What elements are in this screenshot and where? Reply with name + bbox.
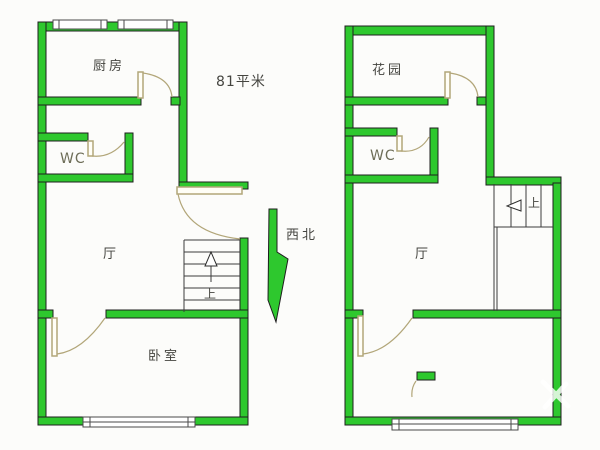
unit-right-hall-door — [358, 316, 412, 356]
unit-right-wc-door — [397, 136, 429, 151]
label-up-left: 上 — [204, 288, 216, 300]
unit-left-kitchen-door — [138, 72, 172, 98]
label-area: 81平米 — [216, 75, 266, 89]
floorplan-drawing — [0, 0, 600, 450]
label-bedroom: 卧室 — [148, 350, 180, 363]
unit-left-windows — [53, 20, 195, 427]
unit-left-stairs — [184, 240, 240, 312]
label-wc-right: WC — [370, 149, 396, 163]
label-up-right: 上 — [528, 197, 540, 209]
label-garden: 花园 — [372, 64, 404, 77]
unit-left-wc-door — [88, 141, 124, 156]
label-kitchen: 厨房 — [93, 60, 125, 73]
unit-left-bedroom-door — [52, 318, 105, 356]
unit-left-entry-door — [177, 187, 242, 239]
compass-northwest-arrow-icon — [268, 209, 288, 322]
unit-right-closet-mark — [412, 372, 435, 397]
floorplan-canvas: 厨房 81平米 WC 厅 上 卧室 西北 花园 WC 上 厅 — [0, 0, 600, 450]
stairs-up-arrow-icon — [507, 200, 521, 211]
label-hall-right: 厅 — [415, 248, 428, 261]
unit-right-window — [392, 419, 518, 430]
label-hall-left: 厅 — [103, 248, 116, 261]
label-wc-left: WC — [60, 152, 86, 166]
unit-right-stairs — [494, 184, 553, 311]
label-compass: 西北 — [286, 229, 318, 242]
unit-right-garden-door — [445, 72, 478, 98]
unit-right-walls — [345, 26, 561, 425]
